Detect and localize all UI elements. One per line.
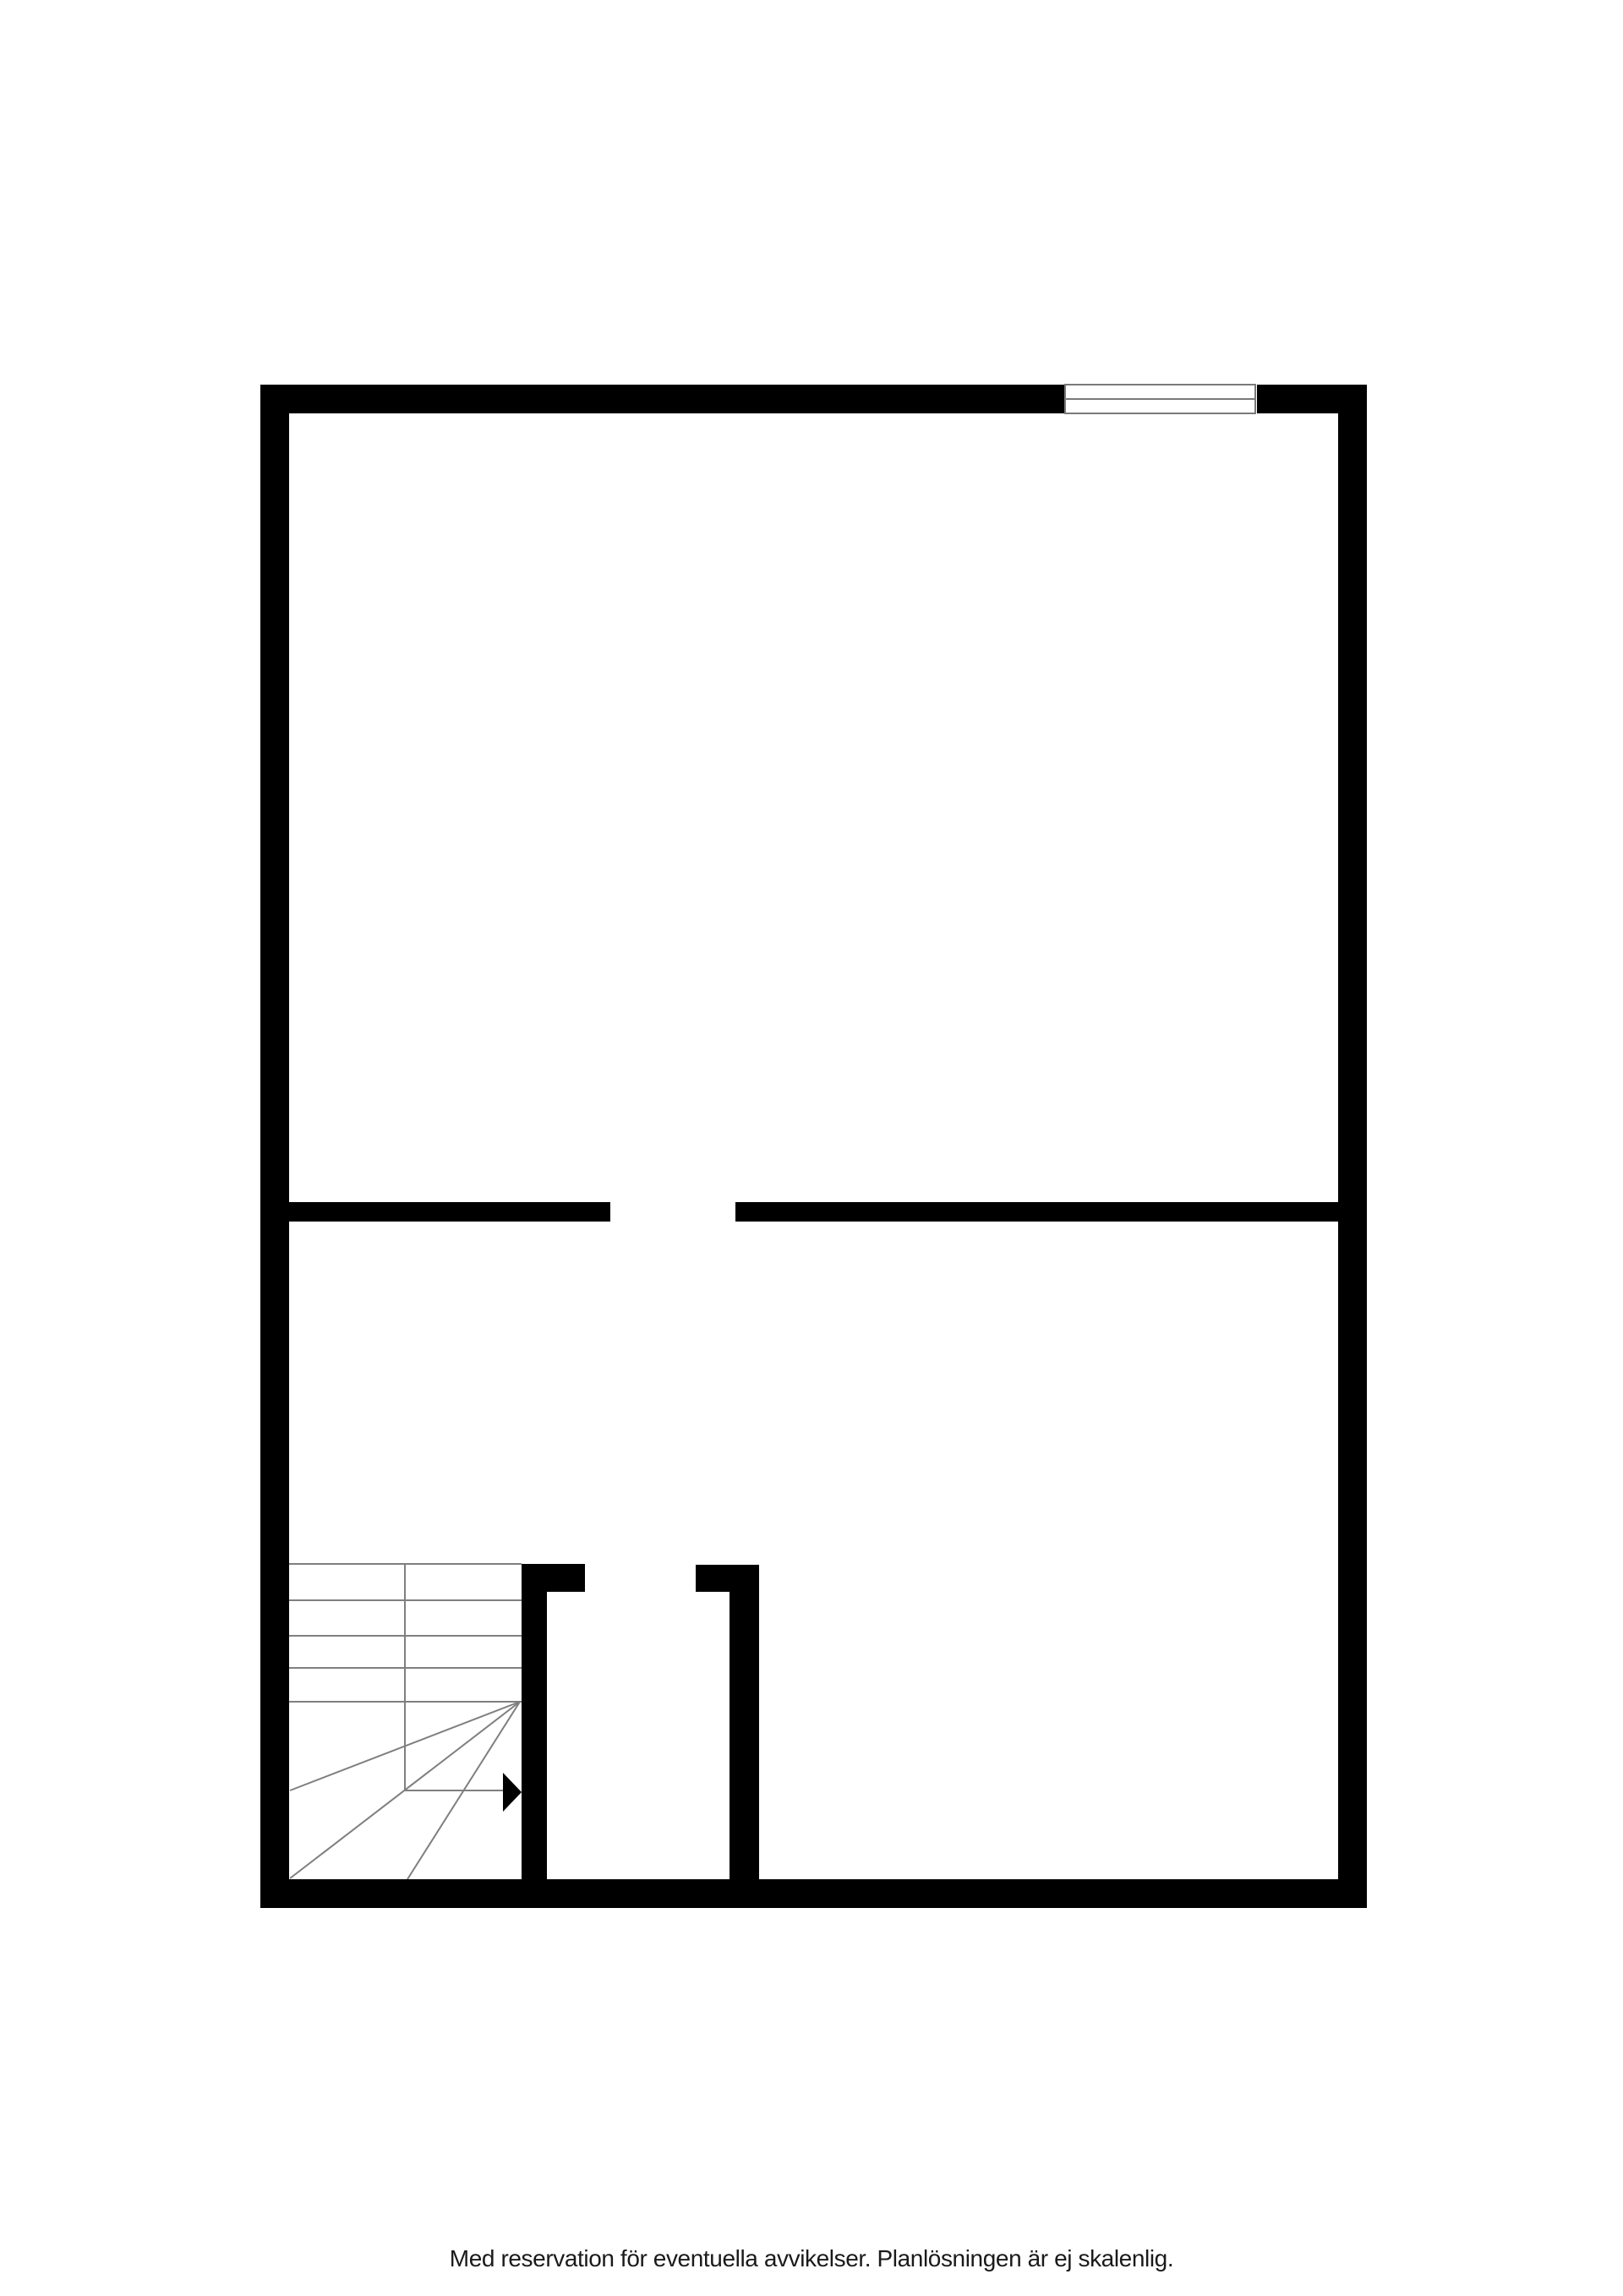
outer-wall-right bbox=[1338, 385, 1367, 1908]
stair-closet-wall-left bbox=[522, 1564, 547, 1879]
outer-wall-left bbox=[260, 385, 289, 1908]
interior-wall-left-segment bbox=[289, 1202, 610, 1222]
stair-direction-arrow bbox=[503, 1773, 522, 1812]
outer-wall-bottom bbox=[260, 1879, 1367, 1908]
floor-plan: Med reservation för eventuella avvikelse… bbox=[0, 0, 1623, 2296]
stair-closet-wall-left-stub bbox=[522, 1564, 585, 1592]
outer-wall-top-left-of-window bbox=[260, 385, 1064, 413]
closet-wall-right bbox=[730, 1565, 759, 1879]
interior-wall-right-segment bbox=[735, 1202, 1338, 1222]
door-opening-interior-wall bbox=[610, 1202, 735, 1222]
staircase bbox=[0, 0, 1623, 2296]
door-opening-closet bbox=[585, 1564, 696, 1592]
disclaimer-text: Med reservation för eventuella avvikelse… bbox=[0, 2245, 1623, 2272]
closet-wall-right-stub bbox=[696, 1565, 759, 1592]
